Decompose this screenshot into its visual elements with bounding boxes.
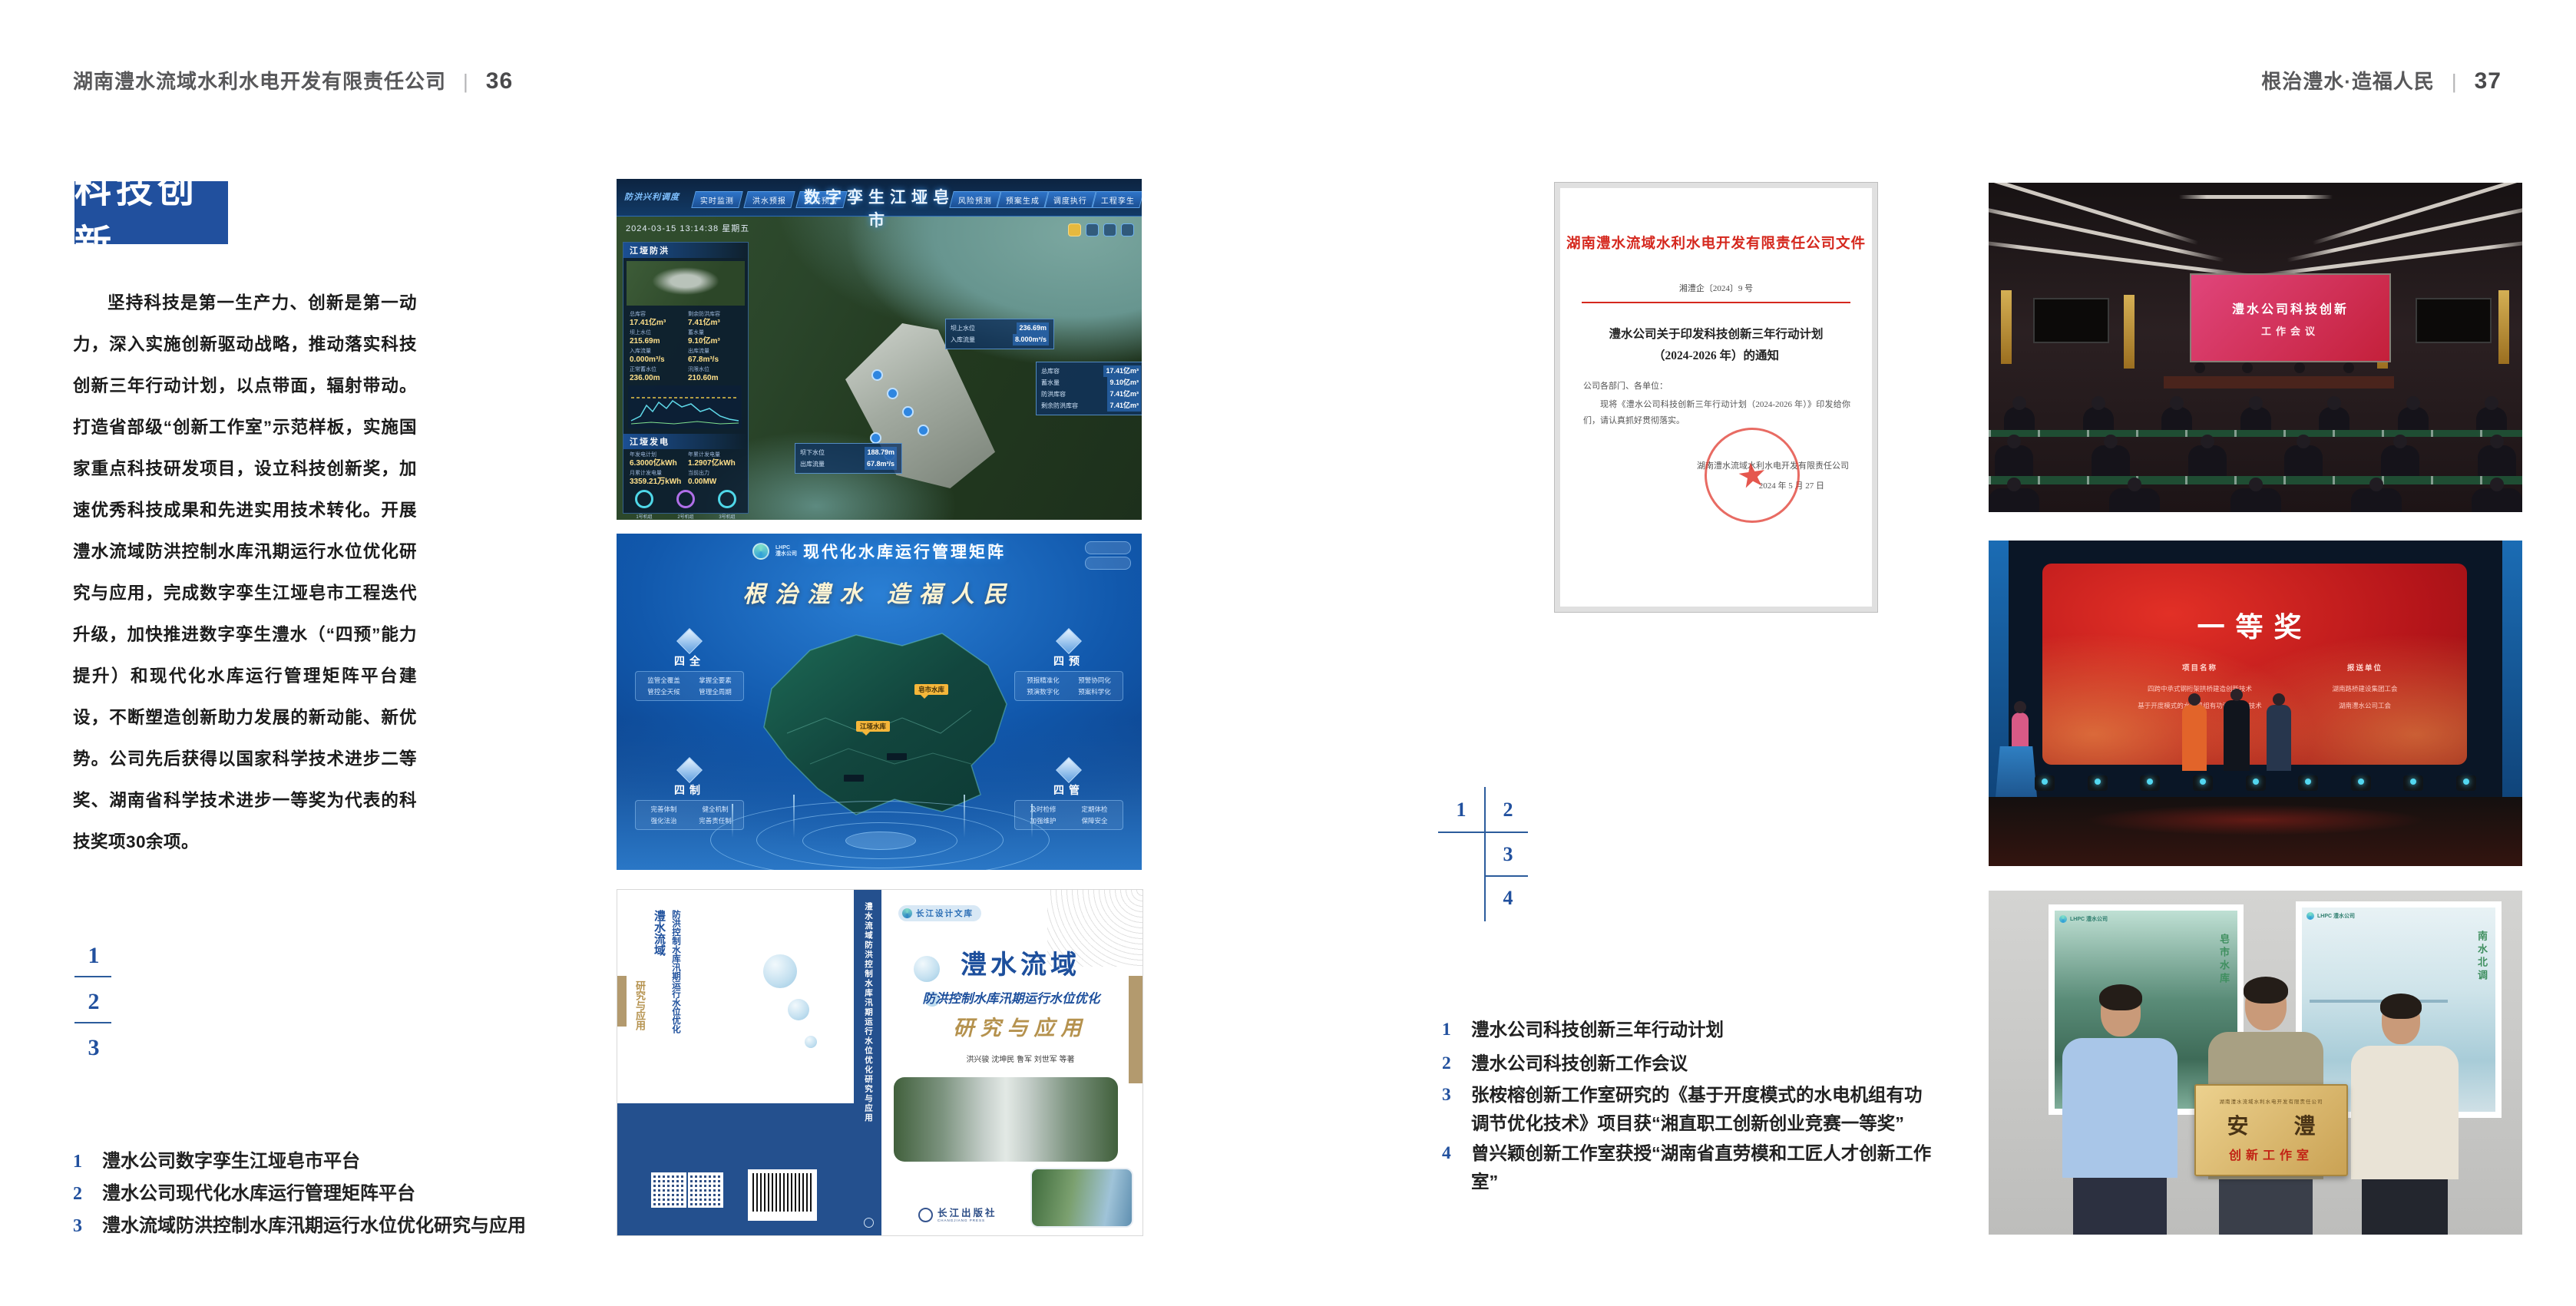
water-level-chart <box>628 385 742 428</box>
wall-lamp <box>2124 295 2135 369</box>
map-marker-icon <box>871 369 883 381</box>
caption-text: 澧水公司数字孪生江垭皂市平台 <box>102 1149 610 1175</box>
index-divider <box>74 1022 111 1023</box>
panelist-silhouette <box>2343 362 2354 373</box>
series-badge: 长江设计文库 <box>898 905 981 921</box>
back-title-sub: 防洪控制水库汛期运行水位优化 <box>670 910 682 1071</box>
person-legs <box>2073 1178 2167 1235</box>
panel-flood-title: 江垭防洪 <box>623 243 748 258</box>
reflective-stage-floor <box>1989 797 2522 866</box>
caption-row: 1 澧水公司科技创新三年行动计划 <box>1442 1016 1939 1044</box>
changjiang-design-logo-icon <box>902 908 912 918</box>
publisher-mark: 长江出版社CHANGJIANG PRESS <box>918 1208 997 1222</box>
map-tag-small <box>844 775 864 782</box>
lhpc-logo-icon <box>752 543 769 560</box>
page-number-right: 37 <box>2475 68 2502 94</box>
document-title-line1: 澧水公司关于印发科技创新三年行动计划 <box>1560 325 1872 342</box>
ceiling-light <box>2312 183 2522 245</box>
innovation-workshop-plaque: 湖南澧水流域水利水电开发有限责任公司 安 澧 创新工作室 <box>2194 1084 2348 1176</box>
slogan-text: 根治澧水·造福人民 <box>2261 70 2435 93</box>
authors-line: 洪兴骏 沈坤民 鲁军 刘世军 等著 <box>909 1053 1132 1064</box>
dashboard-timestamp: 2024-03-15 13:14:38 星期五 <box>626 222 749 234</box>
person-legs <box>2219 1179 2313 1235</box>
caption-row: 2 澧水公司科技创新工作会议 <box>1442 1050 1939 1078</box>
caption-text: 张桉榕创新工作室研究的《基于开度模式的水电机组有功调节优化技术》项目获“湘直职工… <box>1471 1081 1939 1138</box>
caption-text: 曾兴颖创新工作室获授“湖南省直劳模和工匠人才创新工作室” <box>1471 1139 1939 1196</box>
screen-line1: 澧水公司科技创新 <box>2232 299 2349 317</box>
figure-index-2: 2 <box>76 989 111 1015</box>
upstream-callout: 坝上水位236.69m 入库流量8.000m³/s <box>945 319 1054 349</box>
powerhouse-photo <box>1030 1168 1133 1228</box>
turbine-gauges: 1号机组 2号机组 3号机组 <box>623 490 748 520</box>
ceiling-light <box>2287 203 2522 263</box>
award-title: 一等奖 <box>2042 605 2467 645</box>
caption-text: 澧水公司科技创新工作会议 <box>1471 1050 1939 1078</box>
bridge-graphic <box>2310 1000 2448 1003</box>
document-number: 湘澧企〔2024〕9 号 <box>1560 282 1872 294</box>
document-title-line2: （2024-2026 年）的通知 <box>1560 346 1872 363</box>
dashboard-tool-icons <box>1068 223 1134 236</box>
tab-plan-generation: 预案生成 <box>997 191 1048 208</box>
ceiling-light <box>1989 203 2224 263</box>
spine-title: 澧水流域防洪控制水库汛期运行水位优化研究与应用 <box>863 902 875 1123</box>
front-title-sub: 防洪控制水库汛期运行水位优化 <box>886 988 1136 1007</box>
caption-text: 澧水流域防洪控制水库汛期运行水位优化研究与应用 <box>102 1213 610 1239</box>
capacity-callout: 总库容17.41亿m³ 蓄水量9.10亿m³ 防洪库容7.41亿m³ 剩余防洪库… <box>1036 362 1142 415</box>
flood-stats-grid: 总库容17.41亿m³ 剩余防洪库容7.41亿m³ 坝上水位215.69m 蓄水… <box>623 309 748 384</box>
figure-award-ceremony-photo: 一等奖 项目名称 四跨中承式钢桁架拱桥建造创新技术 基于开度模式的水电机组有功调… <box>1989 541 2522 866</box>
tab-engineering-twin: 工程孪生 <box>1092 191 1142 208</box>
audience-row <box>2004 407 2507 430</box>
panel-sizhi: 四制 完善体制健全机制 强化法治完善责任制 <box>635 761 744 830</box>
figure-index-4: 4 <box>1490 887 1526 910</box>
figure-official-document: 湖南澧水流域水利水电开发有限责任公司文件 湘澧企〔2024〕9 号 澧水公司关于… <box>1555 183 1877 612</box>
ripple-core <box>845 832 916 850</box>
person-head <box>2245 981 2287 1030</box>
wall-tv <box>2416 298 2492 343</box>
person-legs <box>2362 1179 2448 1235</box>
person-head <box>2101 989 2141 1037</box>
screen-line2: 工作会议 <box>2261 323 2320 338</box>
seal-star-icon: ★ <box>1734 454 1770 497</box>
dam-photo <box>894 1077 1118 1162</box>
caption-row: 3 澧水流域防洪控制水库汛期运行水位优化研究与应用 <box>73 1213 610 1239</box>
stage-lights-row <box>2035 775 2476 791</box>
brochure-spread: 湖南澧水流域水利水电开发有限责任公司|36 根治澧水·造福人民|37 科技创新 … <box>0 0 2576 1306</box>
document-body: 现将《澧水公司科技创新三年行动计划（2024-2026 年）》印发给你们，请认真… <box>1583 397 1850 429</box>
panelist-silhouette <box>2194 362 2205 373</box>
plaque-sub-text: 创新工作室 <box>2229 1145 2313 1163</box>
map-marker-icon <box>902 406 914 418</box>
panelist-silhouette <box>2242 362 2253 373</box>
figure-index-1: 1 <box>76 943 111 969</box>
publisher-logo-icon <box>918 1208 933 1222</box>
map-marker-icon <box>887 388 898 399</box>
red-divider-line <box>1582 302 1850 303</box>
locate-icon <box>1086 223 1099 236</box>
person-torso-cream-shirt <box>2351 1046 2459 1179</box>
figure-plaque-photo: LHPC 澧水公司 皂市水库 LHPC 澧水公司 南水北调 <box>1989 891 2522 1235</box>
caption-number: 2 <box>73 1181 102 1207</box>
tab-dispatch-execution: 调度执行 <box>1044 191 1096 208</box>
presenter-suit <box>2224 700 2250 771</box>
left-data-panel: 江垭防洪 总库容17.41亿m³ 剩余防洪库容7.41亿m³ 坝上水位215.6… <box>623 242 749 514</box>
dashboard-top-bar: 防洪兴利调度 实时监测 洪水预报 防洪预警 数字孪生江垭皂市 风险预测 预案生成… <box>617 179 1142 217</box>
plaque-header: 湖南澧水流域水利水电开发有限责任公司 <box>2220 1097 2323 1105</box>
light-pillar <box>1031 804 1033 838</box>
figure-digital-twin-platform: 防洪兴利调度 实时监测 洪水预报 防洪预警 数字孪生江垭皂市 风险预测 预案生成… <box>617 179 1142 520</box>
led-screen: 一等奖 项目名称 四跨中承式钢桁架拱桥建造创新技术 基于开度模式的水电机组有功调… <box>2042 564 2467 765</box>
downstream-callout: 坝下水位188.79m 出库流量67.8m³/s <box>795 443 902 474</box>
wall-lamp <box>2498 290 2509 364</box>
index-vertical-line <box>1484 787 1486 921</box>
map-tag-jiangya: 江垭水库 <box>856 721 890 732</box>
figure-book-cover: 澧水流域 防洪控制水库汛期运行水位优化 研究与应用 澧水流域防洪控制水库汛期运行… <box>617 889 1143 1236</box>
poster-left-calligraphy: 皂市水库 <box>2217 934 2231 986</box>
awardee-orange <box>2182 705 2207 771</box>
person-head <box>2382 998 2420 1044</box>
maintenance-icon <box>1056 757 1082 783</box>
figure-index-2: 2 <box>1490 798 1526 822</box>
map-tag-small <box>887 753 907 760</box>
dashboard-corner-label: 防洪兴利调度 <box>624 190 680 203</box>
page-header-right: 根治澧水·造福人民|37 <box>2261 66 2502 94</box>
figure-meeting-photo: 澧水公司科技创新 工作会议 <box>1989 183 2522 512</box>
ceiling-light <box>2179 195 2333 199</box>
plaque-main-text: 安 澧 <box>2207 1109 2335 1140</box>
back-title-main: 澧水流域 <box>651 910 667 956</box>
figure-index-3: 3 <box>76 1035 111 1061</box>
document-red-header: 湖南澧水流域水利水电开发有限责任公司文件 <box>1560 233 1872 253</box>
audience-row <box>1995 445 2516 476</box>
map-tag-zaoshi: 皂市水库 <box>914 684 948 695</box>
caption-row: 1 澧水公司数字孪生江垭皂市平台 <box>73 1149 610 1175</box>
caption-row: 2 澧水公司现代化水库运行管理矩阵平台 <box>73 1181 610 1207</box>
matrix-title: 现代化水库运行管理矩阵 <box>803 540 1006 563</box>
light-pillar <box>793 795 795 838</box>
green-table-strip <box>1989 430 2522 437</box>
figure-matrix-platform: LHPC澧水公司 现代化水库运行管理矩阵 根治澧水 造福人民 皂市水库 江垭水库 <box>617 534 1142 870</box>
tab-realtime-monitoring: 实时监测 <box>691 191 742 208</box>
light-pillar <box>964 795 965 838</box>
matrix-header: LHPC澧水公司 现代化水库运行管理矩阵 <box>617 540 1142 563</box>
page-header-left: 湖南澧水流域水利水电开发有限责任公司|36 <box>73 66 513 94</box>
tan-accent-bar <box>617 976 627 1027</box>
water-droplet <box>788 999 809 1020</box>
audience-row <box>1989 488 2522 512</box>
caption-number: 3 <box>1442 1081 1471 1138</box>
water-droplet <box>805 1036 817 1048</box>
barcode <box>748 1169 817 1221</box>
monitor-icon <box>676 628 703 654</box>
dashboard-title: 数字孪生江垭皂市 <box>802 185 956 231</box>
submitting-unit-column: 报送单位 湖南路桥建设集团工会 湖南澧水公司工会 <box>2296 662 2434 714</box>
body-paragraph: 坚持科技是第一生产力、创新是第一动力，深入实施创新驱动战略，推动落实科技创新三年… <box>73 283 417 863</box>
forecast-icon <box>1056 628 1082 654</box>
page-number-left: 36 <box>486 68 513 94</box>
index-divider <box>74 976 111 977</box>
camera-icon <box>1103 223 1116 236</box>
dam-thumbnail <box>627 261 745 306</box>
layers-icon <box>1068 223 1081 236</box>
caption-text: 澧水公司科技创新三年行动计划 <box>1471 1016 1939 1044</box>
wall-tv <box>2033 298 2109 343</box>
front-title-main: 澧水流域 <box>909 944 1132 981</box>
caption-text: 澧水公司现代化水库运行管理矩阵平台 <box>102 1181 610 1207</box>
panel-siyu: 四预 预报精准化预警协同化 预演数字化预案科学化 <box>1014 632 1123 701</box>
person-torso-blue-shirt <box>2062 1038 2178 1178</box>
qr-code <box>651 1172 686 1208</box>
ceiling-light <box>1989 183 2199 245</box>
caption-number: 2 <box>1442 1050 1471 1078</box>
institution-icon <box>676 757 703 783</box>
map-marker-icon <box>870 432 881 444</box>
qr-code <box>688 1172 723 1208</box>
toolbar-chip <box>1085 557 1131 570</box>
front-title-tail: 研究与应用 <box>909 1011 1132 1041</box>
dais-table <box>2164 376 2394 388</box>
section-title-badge: 科技创新 <box>74 181 228 244</box>
toolbar-chip <box>1085 541 1131 554</box>
panel-siquan: 四全 监管全覆盖掌握全要素 管控全天候管理全周期 <box>635 632 744 701</box>
book-spine: 澧水流域防洪控制水库汛期运行水位优化研究与应用 <box>854 890 881 1235</box>
caption-number: 3 <box>73 1213 102 1239</box>
spine-publisher-icon <box>864 1218 874 1228</box>
figure-index-1: 1 <box>1443 798 1479 822</box>
company-name: 湖南澧水流域水利水电开发有限责任公司 <box>73 70 446 93</box>
tan-accent-bar <box>1129 976 1143 1083</box>
back-title-tail: 研究与应用 <box>633 980 647 1030</box>
caption-number: 1 <box>73 1149 102 1175</box>
panelist-silhouette <box>2294 362 2305 373</box>
caption-number: 4 <box>1442 1139 1471 1196</box>
tab-flood-forecast: 洪水预报 <box>743 191 795 208</box>
header-divider: | <box>463 70 469 93</box>
red-seal: ★ <box>1698 422 1806 529</box>
caption-row: 3 张桉榕创新工作室研究的《基于开度模式的水电机组有功调节优化技术》项目获“湘直… <box>1442 1081 1939 1138</box>
index-divider <box>1484 875 1528 877</box>
panel-power-title: 江垭发电 <box>623 434 748 449</box>
light-pillar <box>732 804 733 838</box>
water-droplet <box>763 954 797 988</box>
awardee-navy <box>2267 705 2291 771</box>
meeting-screen: 澧水公司科技创新 工作会议 <box>2190 273 2391 362</box>
poster-right-calligraphy: 南水北调 <box>2475 931 2489 983</box>
compass-icon <box>1121 223 1134 236</box>
power-stats-grid: 年发电计划6.3000亿kWh 年累计发电量1.2907亿kWh 月累计发电量3… <box>623 449 748 488</box>
lhpc-logo-icon <box>2306 912 2314 920</box>
lhpc-logo-icon <box>2059 915 2067 923</box>
header-divider: | <box>2452 70 2458 93</box>
caption-number: 1 <box>1442 1016 1471 1044</box>
matrix-slogan: 根治澧水 造福人民 <box>617 575 1142 609</box>
figure-index-3: 3 <box>1490 843 1526 866</box>
tab-risk-forecast: 风险预测 <box>949 191 1000 208</box>
caption-row: 4 曾兴颖创新工作室获授“湖南省直劳模和工匠人才创新工作室” <box>1442 1139 1939 1196</box>
map-marker-icon <box>918 425 929 436</box>
index-divider <box>1438 832 1528 833</box>
wall-lamp <box>2001 290 2012 364</box>
document-salutation: 公司各部门、各单位： <box>1583 379 1850 395</box>
